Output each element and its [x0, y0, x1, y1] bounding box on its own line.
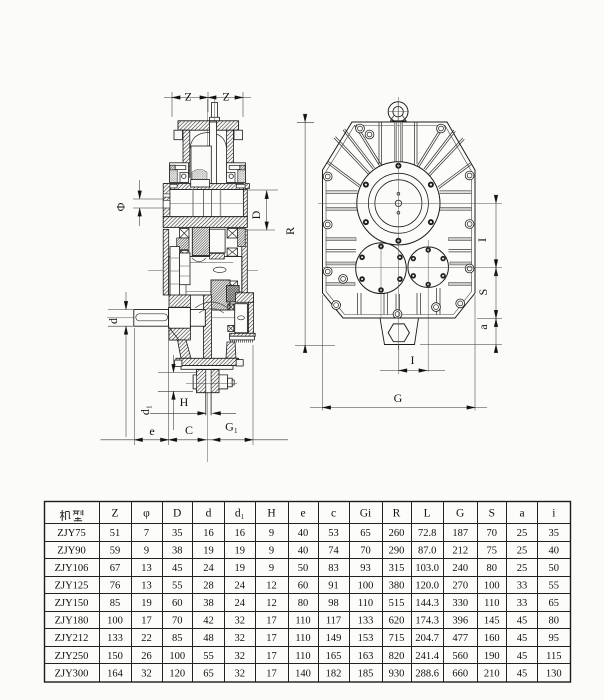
svg-text:φ: φ: [143, 508, 150, 520]
svg-text:110: 110: [295, 616, 310, 627]
svg-text:7: 7: [144, 528, 149, 539]
svg-text:C: C: [185, 423, 193, 437]
svg-text:820: 820: [389, 651, 405, 662]
svg-text:53: 53: [328, 528, 339, 539]
svg-text:100: 100: [107, 616, 123, 627]
svg-text:72.8: 72.8: [418, 528, 436, 539]
svg-text:174.3: 174.3: [415, 616, 439, 627]
svg-text:110: 110: [484, 598, 499, 609]
svg-text:32: 32: [141, 668, 152, 679]
svg-text:25: 25: [517, 528, 528, 539]
svg-text:35: 35: [549, 528, 560, 539]
svg-text:76: 76: [110, 581, 121, 592]
svg-text:D: D: [249, 210, 263, 219]
svg-text:149: 149: [326, 633, 342, 644]
svg-text:930: 930: [389, 668, 405, 679]
svg-text:ZJY180: ZJY180: [55, 616, 89, 627]
svg-text:212: 212: [452, 545, 468, 556]
svg-text:140: 140: [295, 668, 311, 679]
svg-text:80: 80: [487, 563, 498, 574]
svg-text:100: 100: [169, 651, 185, 662]
svg-text:ZJY106: ZJY106: [55, 563, 89, 574]
svg-text:110: 110: [295, 633, 310, 644]
svg-text:59: 59: [110, 545, 121, 556]
svg-text:G₁: G₁: [225, 420, 238, 434]
svg-text:160: 160: [484, 633, 500, 644]
svg-text:9: 9: [269, 563, 274, 574]
svg-text:17: 17: [266, 633, 277, 644]
svg-text:Z: Z: [184, 90, 191, 104]
svg-text:d: d: [206, 508, 212, 520]
svg-text:33: 33: [517, 581, 528, 592]
svg-text:G: G: [456, 508, 464, 520]
svg-text:c: c: [331, 508, 336, 520]
svg-text:I: I: [411, 353, 415, 367]
svg-text:110: 110: [295, 651, 310, 662]
svg-text:R: R: [393, 508, 401, 520]
svg-text:ZJY150: ZJY150: [55, 598, 89, 609]
svg-text:ZJY300: ZJY300: [55, 668, 89, 679]
svg-text:a: a: [476, 324, 490, 330]
svg-text:120: 120: [169, 668, 185, 679]
svg-text:13: 13: [141, 581, 152, 592]
svg-text:55: 55: [549, 581, 560, 592]
svg-text:38: 38: [203, 598, 214, 609]
svg-text:290: 290: [389, 545, 405, 556]
svg-text:9: 9: [144, 545, 149, 556]
svg-text:330: 330: [452, 598, 468, 609]
svg-text:e: e: [149, 424, 154, 438]
svg-text:70: 70: [487, 528, 498, 539]
svg-text:33: 33: [517, 598, 528, 609]
svg-text:42: 42: [203, 616, 214, 627]
svg-text:40: 40: [298, 545, 309, 556]
svg-text:150: 150: [107, 651, 123, 662]
svg-text:67: 67: [110, 563, 121, 574]
svg-text:17: 17: [266, 668, 277, 679]
svg-text:103.0: 103.0: [415, 563, 439, 574]
svg-text:S: S: [476, 289, 490, 296]
svg-text:85: 85: [110, 598, 121, 609]
svg-text:i: i: [552, 508, 555, 520]
svg-text:45: 45: [517, 633, 528, 644]
svg-text:ZJY90: ZJY90: [57, 545, 86, 556]
svg-text:60: 60: [172, 598, 183, 609]
svg-text:182: 182: [326, 668, 342, 679]
svg-text:144.3: 144.3: [415, 598, 439, 609]
svg-text:38: 38: [172, 545, 183, 556]
svg-text:16: 16: [203, 528, 214, 539]
svg-text:100: 100: [484, 581, 500, 592]
svg-text:24: 24: [235, 581, 246, 592]
svg-text:288.6: 288.6: [415, 668, 439, 679]
svg-text:40: 40: [298, 528, 309, 539]
svg-text:32: 32: [235, 616, 246, 627]
svg-text:9: 9: [269, 545, 274, 556]
svg-text:477: 477: [452, 633, 468, 644]
svg-text:28: 28: [203, 581, 214, 592]
svg-text:48: 48: [203, 633, 214, 644]
svg-text:ZJY250: ZJY250: [55, 651, 89, 662]
svg-text:Z: Z: [111, 508, 118, 520]
svg-text:145: 145: [484, 616, 500, 627]
svg-text:120.0: 120.0: [415, 581, 439, 592]
svg-text:204.7: 204.7: [415, 633, 439, 644]
svg-text:190: 190: [484, 651, 500, 662]
svg-text:ZJY212: ZJY212: [55, 633, 89, 644]
svg-text:I: I: [475, 238, 489, 242]
svg-text:83: 83: [328, 563, 339, 574]
svg-text:17: 17: [266, 616, 277, 627]
svg-text:Φ: Φ: [114, 202, 128, 211]
svg-text:95: 95: [549, 633, 560, 644]
svg-text:240: 240: [452, 563, 468, 574]
svg-text:80: 80: [298, 598, 309, 609]
svg-text:110: 110: [358, 598, 373, 609]
svg-text:210: 210: [484, 668, 500, 679]
svg-text:65: 65: [549, 598, 560, 609]
svg-text:9: 9: [269, 528, 274, 539]
svg-text:185: 185: [358, 668, 374, 679]
svg-text:74: 74: [328, 545, 339, 556]
svg-text:19: 19: [141, 598, 152, 609]
svg-text:153: 153: [358, 633, 374, 644]
svg-text:45: 45: [517, 616, 528, 627]
svg-text:40: 40: [549, 545, 560, 556]
svg-text:S: S: [489, 508, 495, 520]
svg-text:65: 65: [360, 528, 371, 539]
svg-text:100: 100: [358, 581, 374, 592]
svg-text:32: 32: [235, 651, 246, 662]
svg-text:24: 24: [203, 563, 214, 574]
svg-text:117: 117: [326, 616, 341, 627]
svg-text:12: 12: [266, 598, 277, 609]
svg-text:87.0: 87.0: [418, 545, 436, 556]
svg-text:d₁: d₁: [235, 508, 245, 520]
svg-text:d: d: [106, 318, 120, 324]
svg-text:75: 75: [487, 545, 498, 556]
svg-text:35: 35: [172, 528, 183, 539]
svg-text:65: 65: [203, 668, 214, 679]
svg-text:270: 270: [452, 581, 468, 592]
svg-text:241.4: 241.4: [415, 651, 439, 662]
svg-text:380: 380: [389, 581, 405, 592]
svg-text:24: 24: [235, 598, 246, 609]
svg-text:560: 560: [452, 651, 468, 662]
svg-text:70: 70: [360, 545, 371, 556]
svg-text:165: 165: [326, 651, 342, 662]
svg-text:70: 70: [172, 616, 183, 627]
svg-text:13: 13: [141, 563, 152, 574]
svg-text:93: 93: [360, 563, 371, 574]
svg-text:d₁: d₁: [138, 405, 152, 415]
svg-text:85: 85: [172, 633, 183, 644]
svg-text:51: 51: [110, 528, 121, 539]
svg-text:22: 22: [141, 633, 152, 644]
svg-text:133: 133: [358, 616, 374, 627]
svg-text:515: 515: [389, 598, 405, 609]
svg-text:164: 164: [107, 668, 124, 679]
svg-text:187: 187: [452, 528, 468, 539]
svg-text:50: 50: [298, 563, 309, 574]
svg-text:260: 260: [389, 528, 405, 539]
svg-text:45: 45: [517, 651, 528, 662]
svg-text:115: 115: [546, 651, 561, 662]
svg-text:163: 163: [358, 651, 374, 662]
svg-text:91: 91: [328, 581, 339, 592]
svg-text:H: H: [180, 395, 189, 409]
svg-text:396: 396: [452, 616, 468, 627]
svg-text:660: 660: [452, 668, 468, 679]
svg-text:715: 715: [389, 633, 405, 644]
svg-text:H: H: [267, 508, 275, 520]
svg-text:25: 25: [517, 563, 528, 574]
svg-text:ZJY75: ZJY75: [57, 528, 86, 539]
svg-text:19: 19: [235, 545, 246, 556]
svg-text:32: 32: [235, 668, 246, 679]
svg-text:D: D: [173, 508, 181, 520]
svg-text:25: 25: [517, 545, 528, 556]
svg-text:315: 315: [389, 563, 405, 574]
svg-text:45: 45: [172, 563, 183, 574]
svg-text:55: 55: [203, 651, 214, 662]
svg-text:12: 12: [266, 581, 277, 592]
svg-text:19: 19: [235, 563, 246, 574]
svg-text:e: e: [300, 508, 305, 520]
svg-text:ZJY125: ZJY125: [55, 581, 89, 592]
svg-text:19: 19: [203, 545, 214, 556]
svg-text:a: a: [519, 508, 524, 520]
svg-text:17: 17: [141, 616, 152, 627]
svg-text:16: 16: [235, 528, 246, 539]
svg-text:133: 133: [107, 633, 123, 644]
svg-text:32: 32: [235, 633, 246, 644]
svg-text:98: 98: [328, 598, 339, 609]
svg-text:50: 50: [549, 563, 560, 574]
svg-text:55: 55: [172, 581, 183, 592]
svg-text:Z: Z: [222, 90, 229, 104]
svg-text:26: 26: [141, 651, 152, 662]
svg-text:L: L: [424, 508, 431, 520]
svg-text:G: G: [394, 391, 403, 405]
svg-text:130: 130: [546, 668, 562, 679]
svg-text:45: 45: [517, 668, 528, 679]
svg-text:80: 80: [549, 616, 560, 627]
svg-text:17: 17: [266, 651, 277, 662]
svg-text:620: 620: [389, 616, 405, 627]
svg-text:R: R: [283, 227, 297, 235]
svg-text:Gi: Gi: [360, 508, 372, 520]
svg-text:60: 60: [298, 581, 309, 592]
